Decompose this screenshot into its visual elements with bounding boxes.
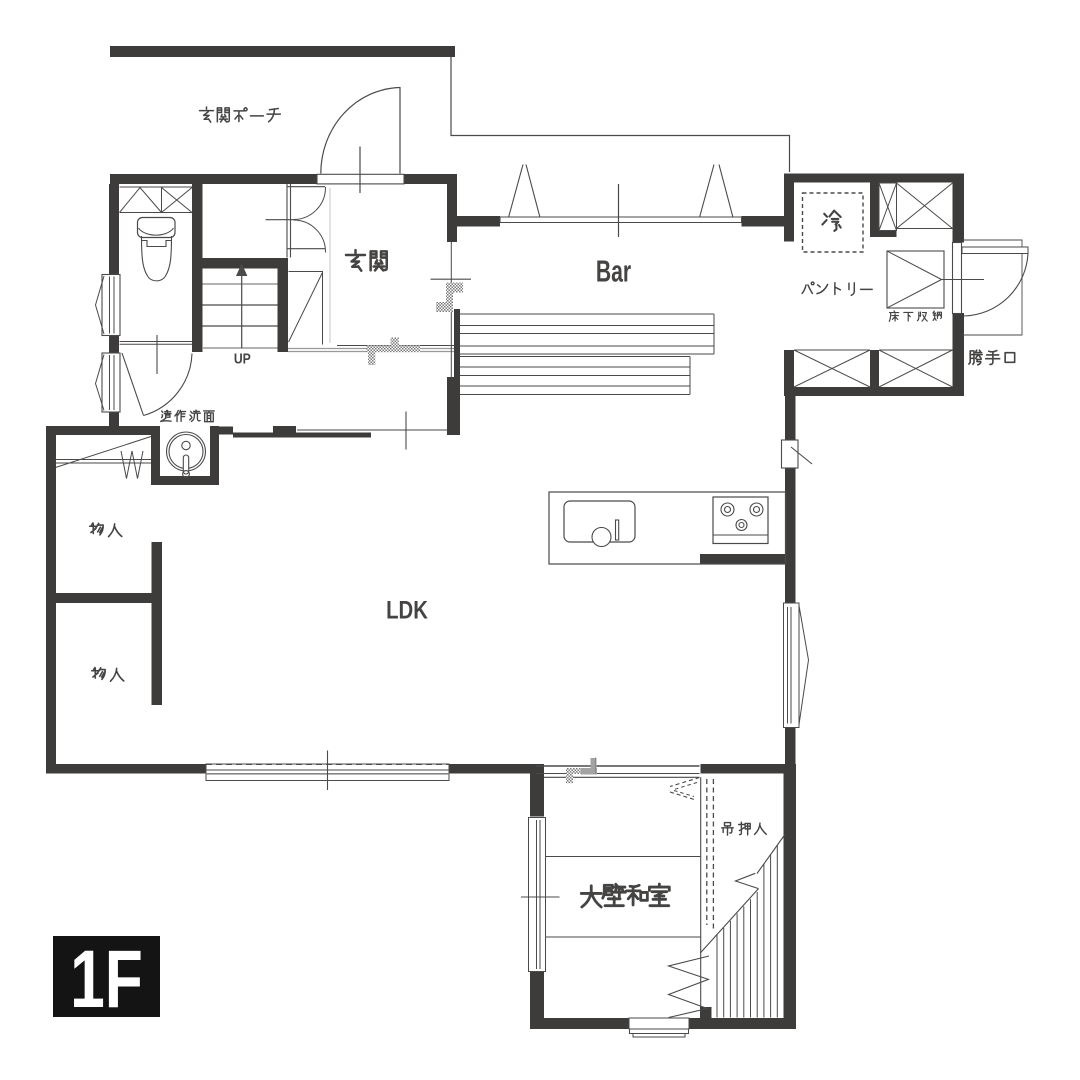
svg-text:1F: 1F <box>70 934 143 1025</box>
svg-text:Bar: Bar <box>596 253 631 288</box>
svg-text:UP: UP <box>234 350 251 366</box>
svg-text:LDK: LDK <box>386 596 428 625</box>
